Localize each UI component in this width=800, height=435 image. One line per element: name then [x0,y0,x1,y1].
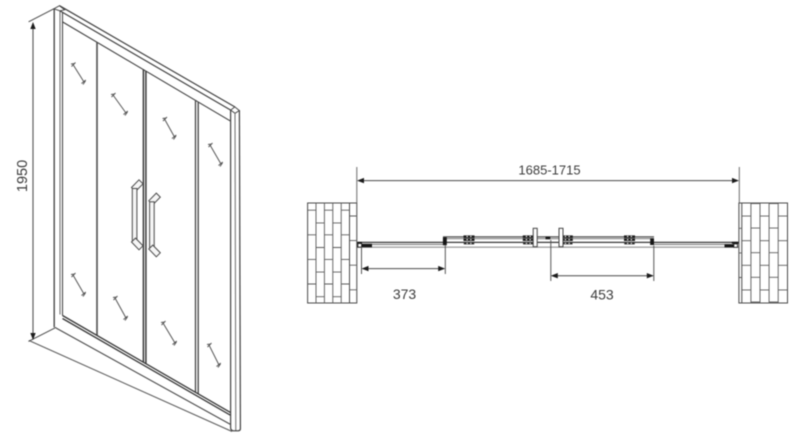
svg-text:453: 453 [590,287,614,303]
svg-text:1950: 1950 [15,160,31,192]
svg-text:373: 373 [393,286,417,302]
svg-text:1685-1715: 1685-1715 [518,163,580,178]
